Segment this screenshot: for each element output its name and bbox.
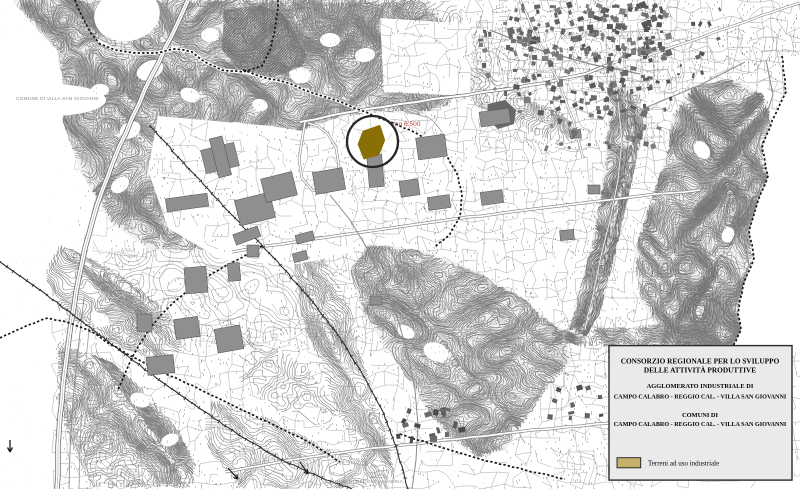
svg-text:mq 6.500: mq 6.500 — [393, 121, 421, 128]
svg-text:COMUNI DI: COMUNI DI — [682, 412, 719, 419]
svg-text:CAMPO CALABRO - REGGIO CAL. -: CAMPO CALABRO - REGGIO CAL. - VILLA SAN … — [614, 422, 787, 428]
svg-text:Terreni ad uso industriale: Terreni ad uso industriale — [648, 459, 719, 467]
svg-text:DELLE ATTIVITÀ PRODUTTIVE: DELLE ATTIVITÀ PRODUTTIVE — [644, 364, 756, 374]
svg-text:AGGLOMERATO INDUSTRIALE DI: AGGLOMERATO INDUSTRIALE DI — [647, 383, 754, 390]
svg-text:CONSORZIO REGIONALE PER LO SVI: CONSORZIO REGIONALE PER LO SVILUPPO — [621, 357, 780, 366]
svg-text:COMUNE DI REGGIO CALABRIA: COMUNE DI REGGIO CALABRIA — [325, 479, 404, 485]
svg-text:COMUNE DI VILLA SAN GIOVANNI: COMUNE DI VILLA SAN GIOVANNI — [16, 96, 99, 102]
svg-text:CAMPO CALABRO - REGGIO CAL. -: CAMPO CALABRO - REGGIO CAL. - VILLA SAN … — [614, 395, 787, 401]
